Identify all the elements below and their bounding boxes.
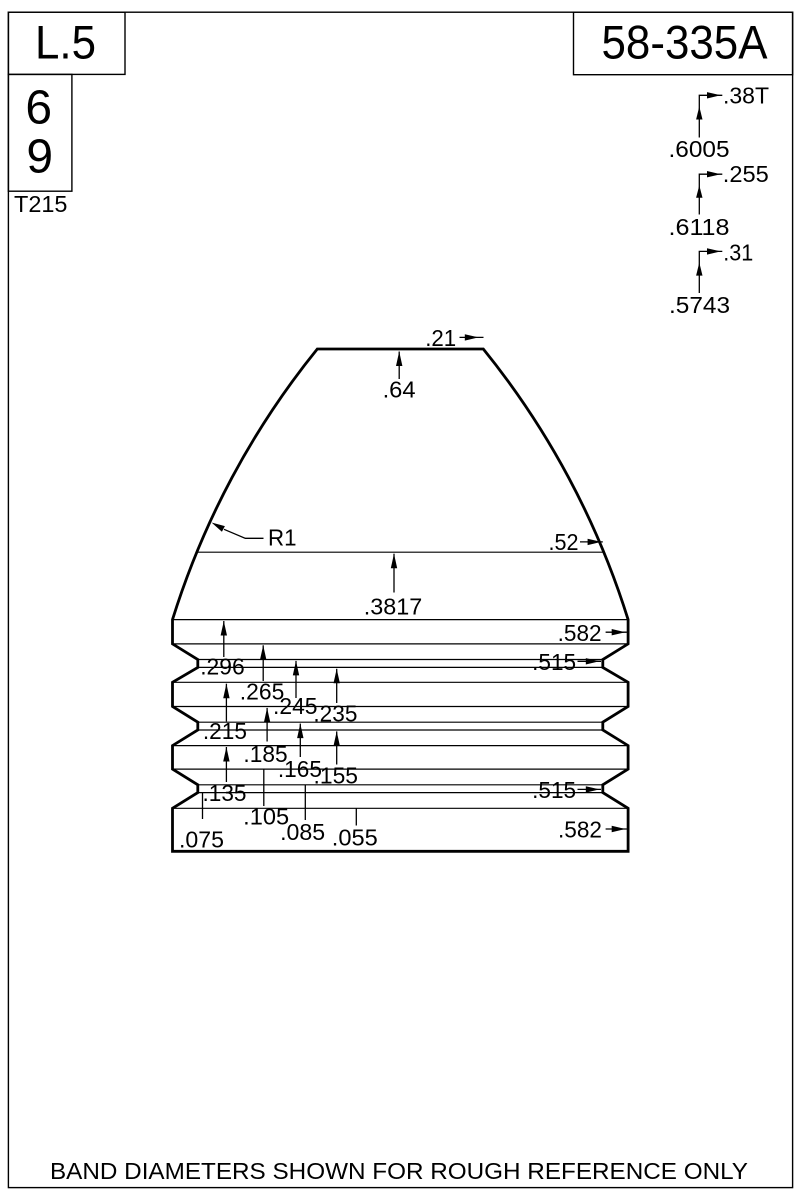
svg-text:T215: T215 — [14, 191, 68, 217]
svg-text:.5743: .5743 — [669, 292, 730, 318]
svg-text:.64: .64 — [383, 377, 416, 403]
svg-text:BAND DIAMETERS SHOWN FOR ROUGH: BAND DIAMETERS SHOWN FOR ROUGH REFERENCE… — [50, 1158, 748, 1184]
svg-text:58-335A: 58-335A — [602, 15, 769, 68]
svg-text:.135: .135 — [203, 780, 247, 806]
svg-text:.6118: .6118 — [669, 214, 730, 240]
svg-text:.38T: .38T — [723, 83, 769, 109]
svg-text:.52: .52 — [549, 529, 579, 555]
svg-text:.235: .235 — [313, 700, 357, 726]
svg-text:.21: .21 — [425, 325, 456, 351]
svg-text:.255: .255 — [723, 161, 769, 187]
svg-text:.582: .582 — [558, 620, 602, 646]
svg-text:.055: .055 — [332, 824, 378, 850]
svg-text:6: 6 — [25, 82, 52, 135]
svg-text:.075: .075 — [179, 826, 224, 852]
svg-text:.296: .296 — [200, 654, 245, 680]
svg-text:.215: .215 — [203, 718, 247, 744]
svg-text:.6005: .6005 — [669, 136, 730, 162]
svg-text:.515: .515 — [532, 777, 576, 803]
svg-text:.155: .155 — [314, 763, 359, 789]
svg-text:R1: R1 — [268, 525, 297, 551]
svg-text:.515: .515 — [532, 649, 576, 675]
svg-text:.31: .31 — [723, 240, 753, 266]
svg-text:9: 9 — [26, 131, 53, 184]
svg-text:.085: .085 — [280, 819, 325, 845]
svg-text:.245: .245 — [273, 693, 318, 719]
svg-text:.3817: .3817 — [364, 593, 423, 619]
svg-text:.582: .582 — [558, 816, 602, 842]
svg-text:L.5: L.5 — [35, 16, 96, 69]
